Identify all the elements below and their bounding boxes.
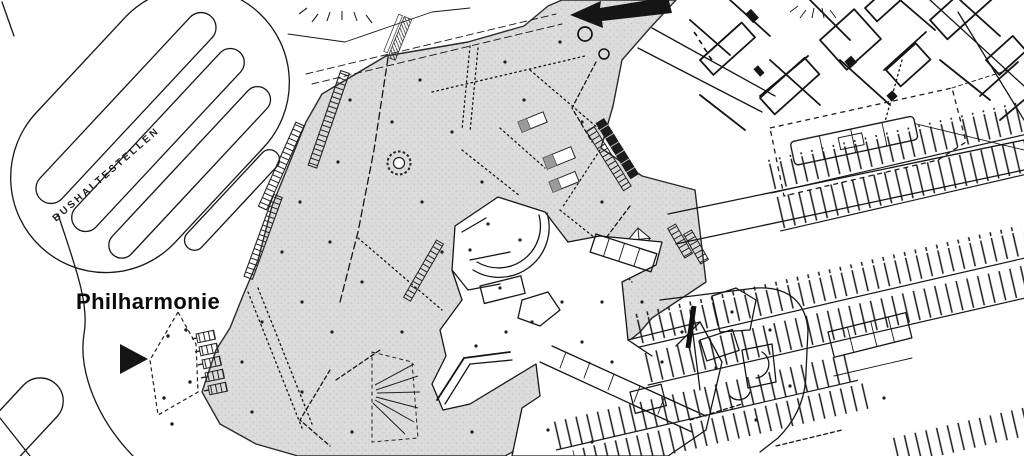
pointer-triangle-icon	[120, 344, 148, 374]
philharmonie-label: Philharmonie	[76, 289, 220, 314]
philharmonie-callout: Philharmonie	[76, 289, 220, 374]
sunburst-marks	[299, 8, 372, 23]
site-plan-page: BUSHALTESTELLEN	[0, 0, 1024, 456]
parking-band-corner	[888, 403, 1024, 456]
site-plan-map: BUSHALTESTELLEN	[0, 0, 1024, 456]
